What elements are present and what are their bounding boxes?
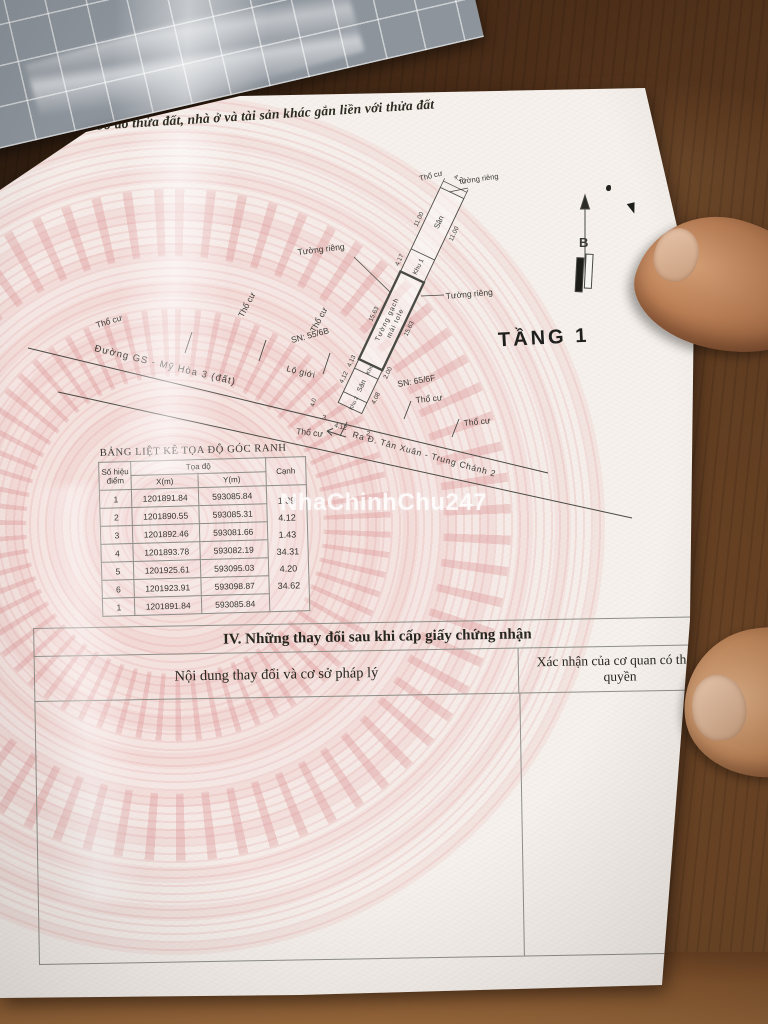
ink-marks (604, 183, 644, 223)
road-direction-label: Ra Đ. Tân Xuân - Trung Chánh 2 (351, 429, 497, 478)
floor-label: TẦNG 1 (497, 325, 589, 353)
document-page: III. Sơ đồ thửa đất, nhà ở và tài sản kh… (0, 85, 768, 1024)
edge-value: 4.20 (270, 563, 308, 581)
plastic-glare-streak (109, 127, 237, 477)
scale-bar (575, 254, 593, 293)
road-dim: 4.12 (334, 422, 348, 432)
top-tho-cu-label: Thổ cư (418, 168, 443, 182)
coord-table: Số hiệu điểm Tọa độ Cạnh X(m) Y(m) 1 120… (98, 456, 310, 617)
lo-gioi-label: Lộ giới (286, 363, 317, 380)
edge-value: 34.62 (270, 580, 308, 598)
edge-value: 1.43 (269, 529, 307, 547)
document-page-wrap: III. Sơ đồ thửa đất, nhà ở và tài sản kh… (0, 85, 768, 1024)
road-dim: 3 (322, 414, 327, 422)
tho-cu-label: Thổ cư (236, 290, 258, 319)
wall-leader-left (354, 257, 391, 293)
north-label: B (579, 235, 588, 250)
watermark: NhaChinhChu247 (280, 489, 487, 517)
section4-table: IV. Những thay đổi sau khi cấp giấy chứn… (33, 616, 727, 965)
road-dim: 4.0 (310, 397, 318, 407)
wall-label-left: Tường riêng (297, 241, 345, 257)
wall-label-right: Tường riêng (445, 287, 493, 301)
thumb-bottom-nail (689, 672, 750, 743)
tho-cu-label: Thổ cư (463, 415, 491, 428)
wall-leader-right (421, 295, 444, 296)
tho-cu-label: Thổ cư (296, 426, 324, 439)
dim-side-b: 4.08 (370, 391, 382, 406)
section4-column-divider (519, 694, 525, 956)
coord-header-edge: Cạnh (265, 457, 306, 486)
edge-value: 34.31 (269, 546, 307, 564)
tho-cu-label: Thổ cư (415, 392, 443, 405)
house-number-right: SN: 65/6F (397, 372, 436, 388)
